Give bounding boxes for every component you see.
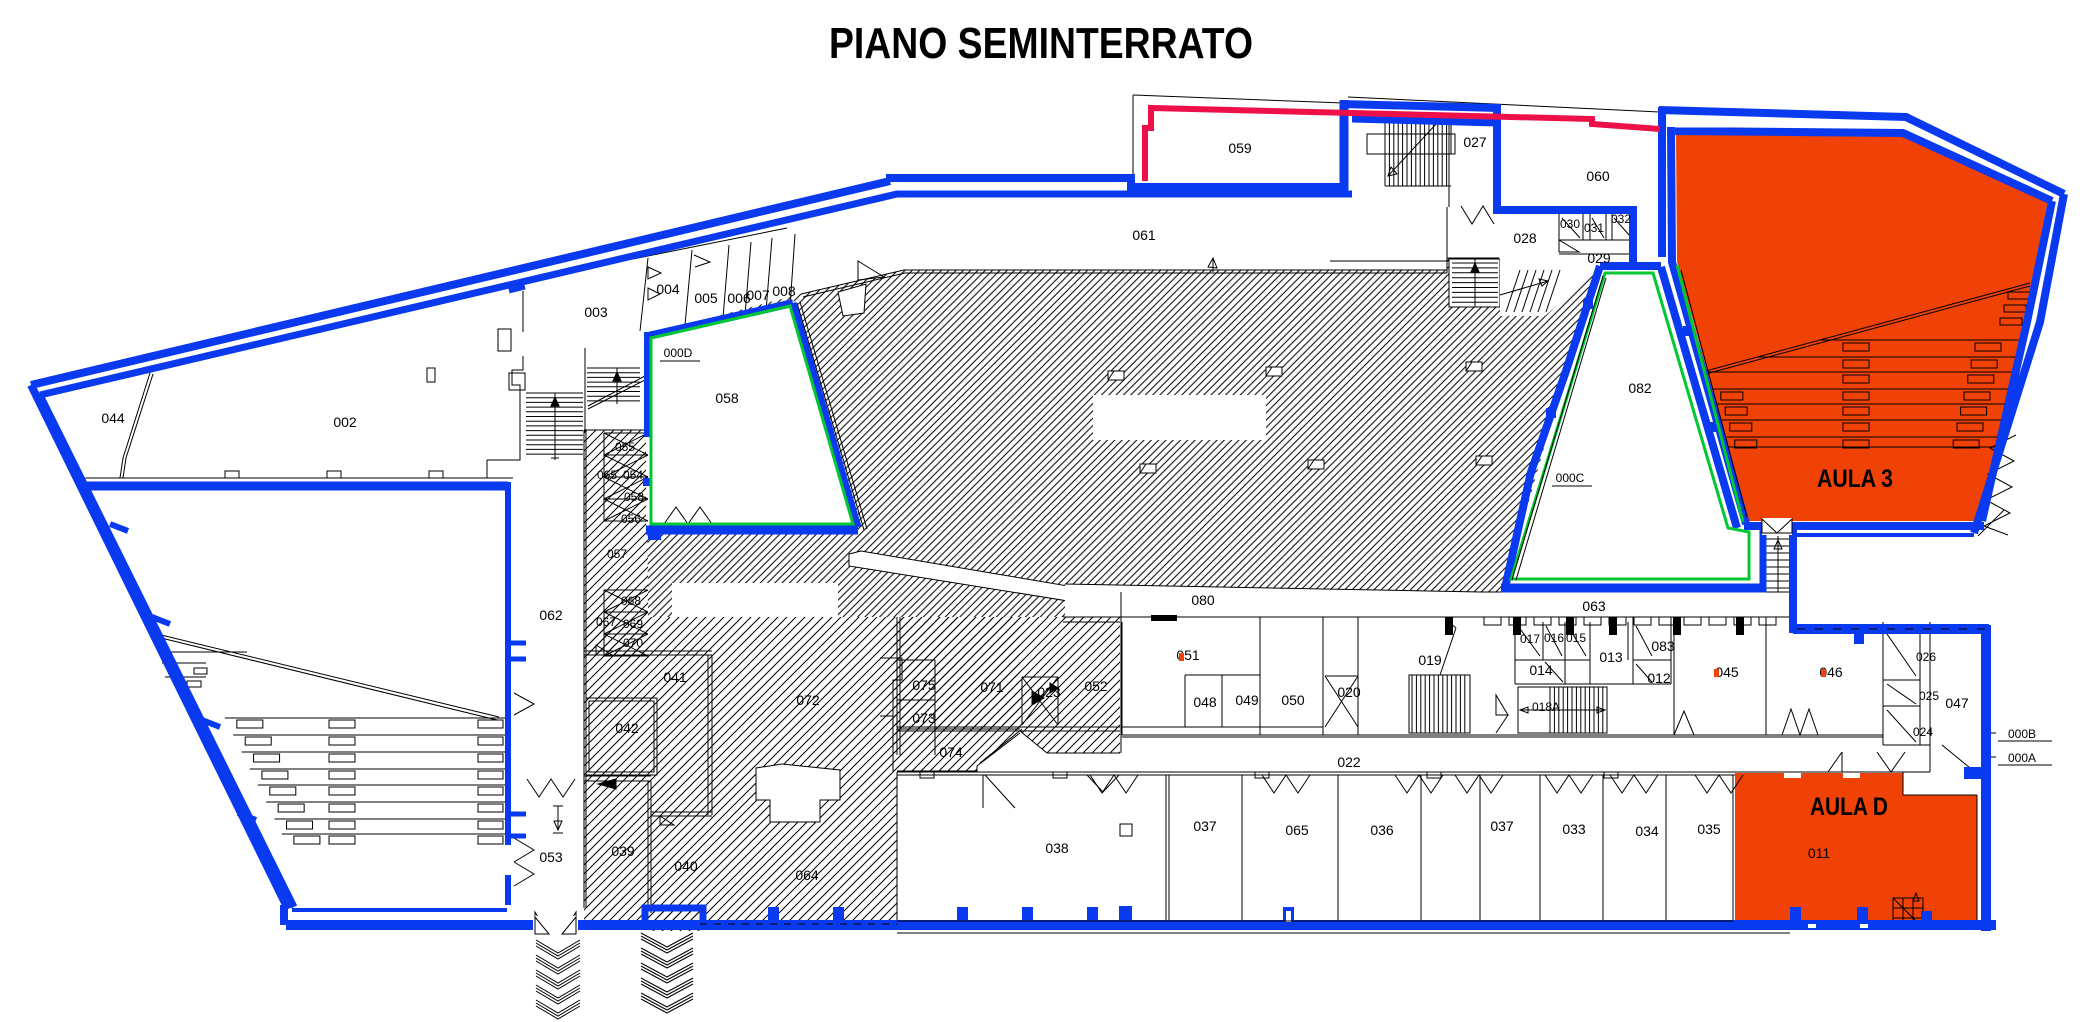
- svg-text:062: 062: [539, 607, 563, 623]
- svg-text:027: 027: [1463, 134, 1487, 150]
- svg-text:044: 044: [101, 410, 125, 426]
- svg-text:058: 058: [715, 390, 739, 406]
- svg-text:072: 072: [796, 692, 820, 708]
- svg-text:013: 013: [1599, 649, 1623, 665]
- svg-text:082: 082: [1628, 380, 1652, 396]
- svg-text:022: 022: [1337, 754, 1361, 770]
- svg-text:000A: 000A: [2008, 751, 2036, 765]
- svg-text:075: 075: [912, 677, 936, 693]
- svg-text:080: 080: [1191, 592, 1215, 608]
- svg-text:012: 012: [1647, 670, 1671, 686]
- svg-text:050: 050: [1281, 692, 1305, 708]
- svg-text:025: 025: [1919, 689, 1939, 703]
- svg-text:007: 007: [746, 287, 770, 303]
- svg-text:060: 060: [1586, 168, 1610, 184]
- svg-text:083: 083: [1651, 638, 1675, 654]
- svg-text:039: 039: [611, 843, 635, 859]
- svg-text:000B: 000B: [2008, 727, 2036, 741]
- svg-text:036: 036: [1370, 822, 1394, 838]
- svg-text:008: 008: [772, 283, 796, 299]
- svg-text:020: 020: [1337, 684, 1361, 700]
- svg-text:019: 019: [1418, 652, 1442, 668]
- svg-text:AULA D: AULA D: [1810, 793, 1888, 821]
- svg-text:052: 052: [1084, 678, 1108, 694]
- svg-text:000D: 000D: [664, 346, 693, 360]
- svg-text:074: 074: [939, 744, 963, 760]
- svg-text:068: 068: [621, 594, 641, 608]
- svg-text:018A: 018A: [1532, 700, 1560, 714]
- svg-text:042: 042: [615, 720, 639, 736]
- svg-text:016: 016: [1544, 631, 1564, 645]
- svg-text:037: 037: [1490, 818, 1514, 834]
- svg-text:003: 003: [584, 304, 608, 320]
- svg-text:030: 030: [1560, 217, 1580, 231]
- svg-text:031: 031: [1584, 221, 1604, 235]
- svg-text:PIANO SEMINTERRATO: PIANO SEMINTERRATO: [829, 19, 1253, 68]
- svg-text:000C: 000C: [1556, 471, 1585, 485]
- svg-text:023: 023: [1037, 684, 1061, 700]
- svg-text:024: 024: [1913, 725, 1933, 739]
- svg-text:033: 033: [1562, 821, 1586, 837]
- svg-text:059: 059: [1228, 140, 1252, 156]
- svg-text:037: 037: [1193, 818, 1217, 834]
- svg-text:028: 028: [1513, 230, 1537, 246]
- svg-text:041: 041: [663, 669, 687, 685]
- svg-text:004: 004: [656, 281, 680, 297]
- svg-text:054: 054: [623, 468, 643, 482]
- svg-text:057: 057: [607, 547, 627, 561]
- svg-text:064: 064: [795, 867, 819, 883]
- svg-text:073: 073: [912, 710, 936, 726]
- svg-text:032: 032: [1611, 212, 1631, 226]
- svg-text:055: 055: [615, 440, 635, 454]
- svg-text:038: 038: [1045, 840, 1069, 856]
- svg-text:048: 048: [1193, 694, 1217, 710]
- svg-text:063: 063: [1582, 598, 1606, 614]
- svg-text:005: 005: [694, 290, 718, 306]
- svg-text:002: 002: [333, 414, 357, 430]
- svg-text:026: 026: [1916, 650, 1936, 664]
- svg-text:067: 067: [596, 615, 616, 629]
- svg-text:049: 049: [1235, 692, 1259, 708]
- svg-text:047: 047: [1945, 695, 1969, 711]
- svg-text:011: 011: [1808, 845, 1831, 861]
- svg-text:014: 014: [1529, 662, 1553, 678]
- svg-text:056: 056: [621, 512, 641, 526]
- svg-text:AULA 3: AULA 3: [1817, 465, 1893, 493]
- svg-text:017: 017: [1520, 632, 1540, 646]
- svg-text:035: 035: [1697, 821, 1721, 837]
- svg-text:040: 040: [674, 858, 698, 874]
- svg-text:065: 065: [1285, 822, 1309, 838]
- svg-text:053: 053: [539, 849, 563, 865]
- svg-text:029: 029: [1587, 250, 1611, 266]
- svg-text:070: 070: [623, 636, 643, 650]
- svg-text:061: 061: [1132, 227, 1156, 243]
- svg-text:015: 015: [1566, 631, 1586, 645]
- svg-text:034: 034: [1635, 823, 1659, 839]
- svg-text:071: 071: [980, 679, 1004, 695]
- svg-text:065: 065: [597, 468, 617, 482]
- svg-text:069: 069: [623, 617, 643, 631]
- svg-text:058: 058: [624, 490, 644, 504]
